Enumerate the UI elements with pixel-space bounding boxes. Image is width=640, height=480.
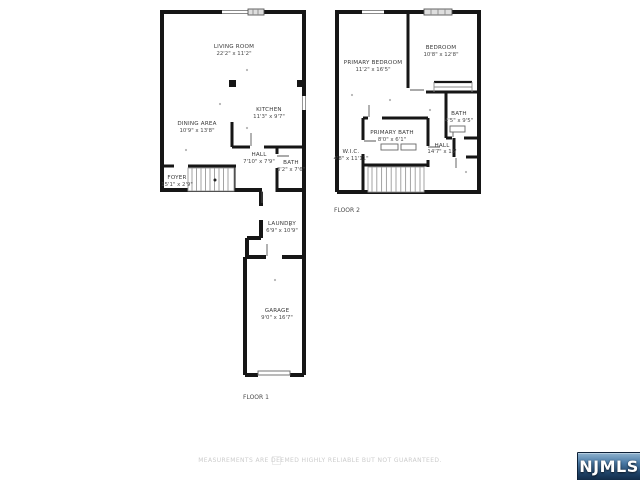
room-label-living-room: LIVING ROOM — [214, 44, 254, 50]
room-dims-primary-bedroom: 11'2" x 16'5" — [355, 67, 390, 73]
room-dims-bath-f1: 3'2" x 7'6" — [277, 167, 305, 173]
floor1-top-opening — [222, 11, 248, 14]
floor1-stairs — [188, 168, 234, 191]
room-dims-dining-area: 10'9" x 13'8" — [179, 128, 214, 134]
room-label-hall-f1: HALL — [251, 152, 267, 158]
room-dims-hall-f2: 14'7" x 15' — [427, 149, 456, 155]
room-dims-kitchen: 11'3" x 9'7" — [253, 114, 285, 120]
njmls-logo: NJMLS — [577, 452, 640, 480]
stair-dot — [214, 179, 217, 182]
floor1-column-left — [229, 80, 236, 87]
room-dims-wic: 4'8" x 11'11" — [333, 156, 368, 162]
room-dims-foyer: 15'1" x 2'9" — [161, 182, 193, 188]
floor2-stairs — [368, 167, 424, 192]
floor1-plan: LIVING ROOM 22'2" x 11'2" KITCHEN 11'3" … — [161, 9, 306, 401]
room-label-dining-area: DINING AREA — [177, 121, 216, 127]
floor1-window — [248, 9, 264, 15]
floor2-door-leaves — [364, 90, 456, 168]
floor1-label: FLOOR 1 — [243, 394, 269, 401]
room-dims-living-room: 22'2" x 11'2" — [216, 51, 251, 57]
floor-plan-canvas: LIVING ROOM 22'2" x 11'2" KITCHEN 11'3" … — [0, 0, 640, 480]
room-label-garage: GARAGE — [265, 308, 290, 314]
floor2-label: FLOOR 2 — [334, 207, 360, 214]
room-label-kitchen: KITCHEN — [256, 107, 282, 113]
room-label-bath-f1: BATH — [283, 160, 299, 166]
floor1-right-opening — [303, 96, 306, 110]
room-dims-garage: 9'0" x 16'7" — [261, 315, 293, 321]
room-label-primary-bath: PRIMARY BATH — [370, 130, 414, 136]
room-label-foyer: FOYER — [167, 175, 186, 181]
room-label-bedroom: BEDROOM — [426, 45, 457, 51]
floor2-interior-walls — [363, 10, 479, 192]
measurements-disclaimer: MEASUREMENTS ARE DEEMED HIGHLY RELIABLE … — [0, 457, 640, 464]
garage-door — [258, 371, 290, 375]
room-label-primary-bedroom: PRIMARY BEDROOM — [344, 60, 402, 66]
room-dims-laundry: 6'9" x 10'9" — [266, 228, 298, 234]
floor2-plan: PRIMARY BEDROOM 11'2" x 16'5" BEDROOM 10… — [333, 9, 481, 214]
floor2-top-opening — [362, 11, 384, 14]
floor1-column-right — [297, 80, 304, 87]
room-label-wic: W.I.C. — [343, 149, 360, 155]
njmls-logo-text: NJMLS — [579, 457, 638, 476]
room-dims-bedroom: 10'8" x 12'8" — [423, 52, 458, 58]
room-dims-bath-f2: 4'5" x 9'5" — [445, 118, 473, 124]
floor-plan-page: LIVING ROOM 22'2" x 11'2" KITCHEN 11'3" … — [0, 0, 640, 480]
room-label-laundry: LAUNDRY — [268, 221, 296, 227]
room-dims-hall-f1: 7'10" x 7'9" — [243, 159, 275, 165]
room-dims-primary-bath: 8'0" x 6'1" — [378, 137, 406, 143]
room-label-bath-f2: BATH — [451, 111, 467, 117]
